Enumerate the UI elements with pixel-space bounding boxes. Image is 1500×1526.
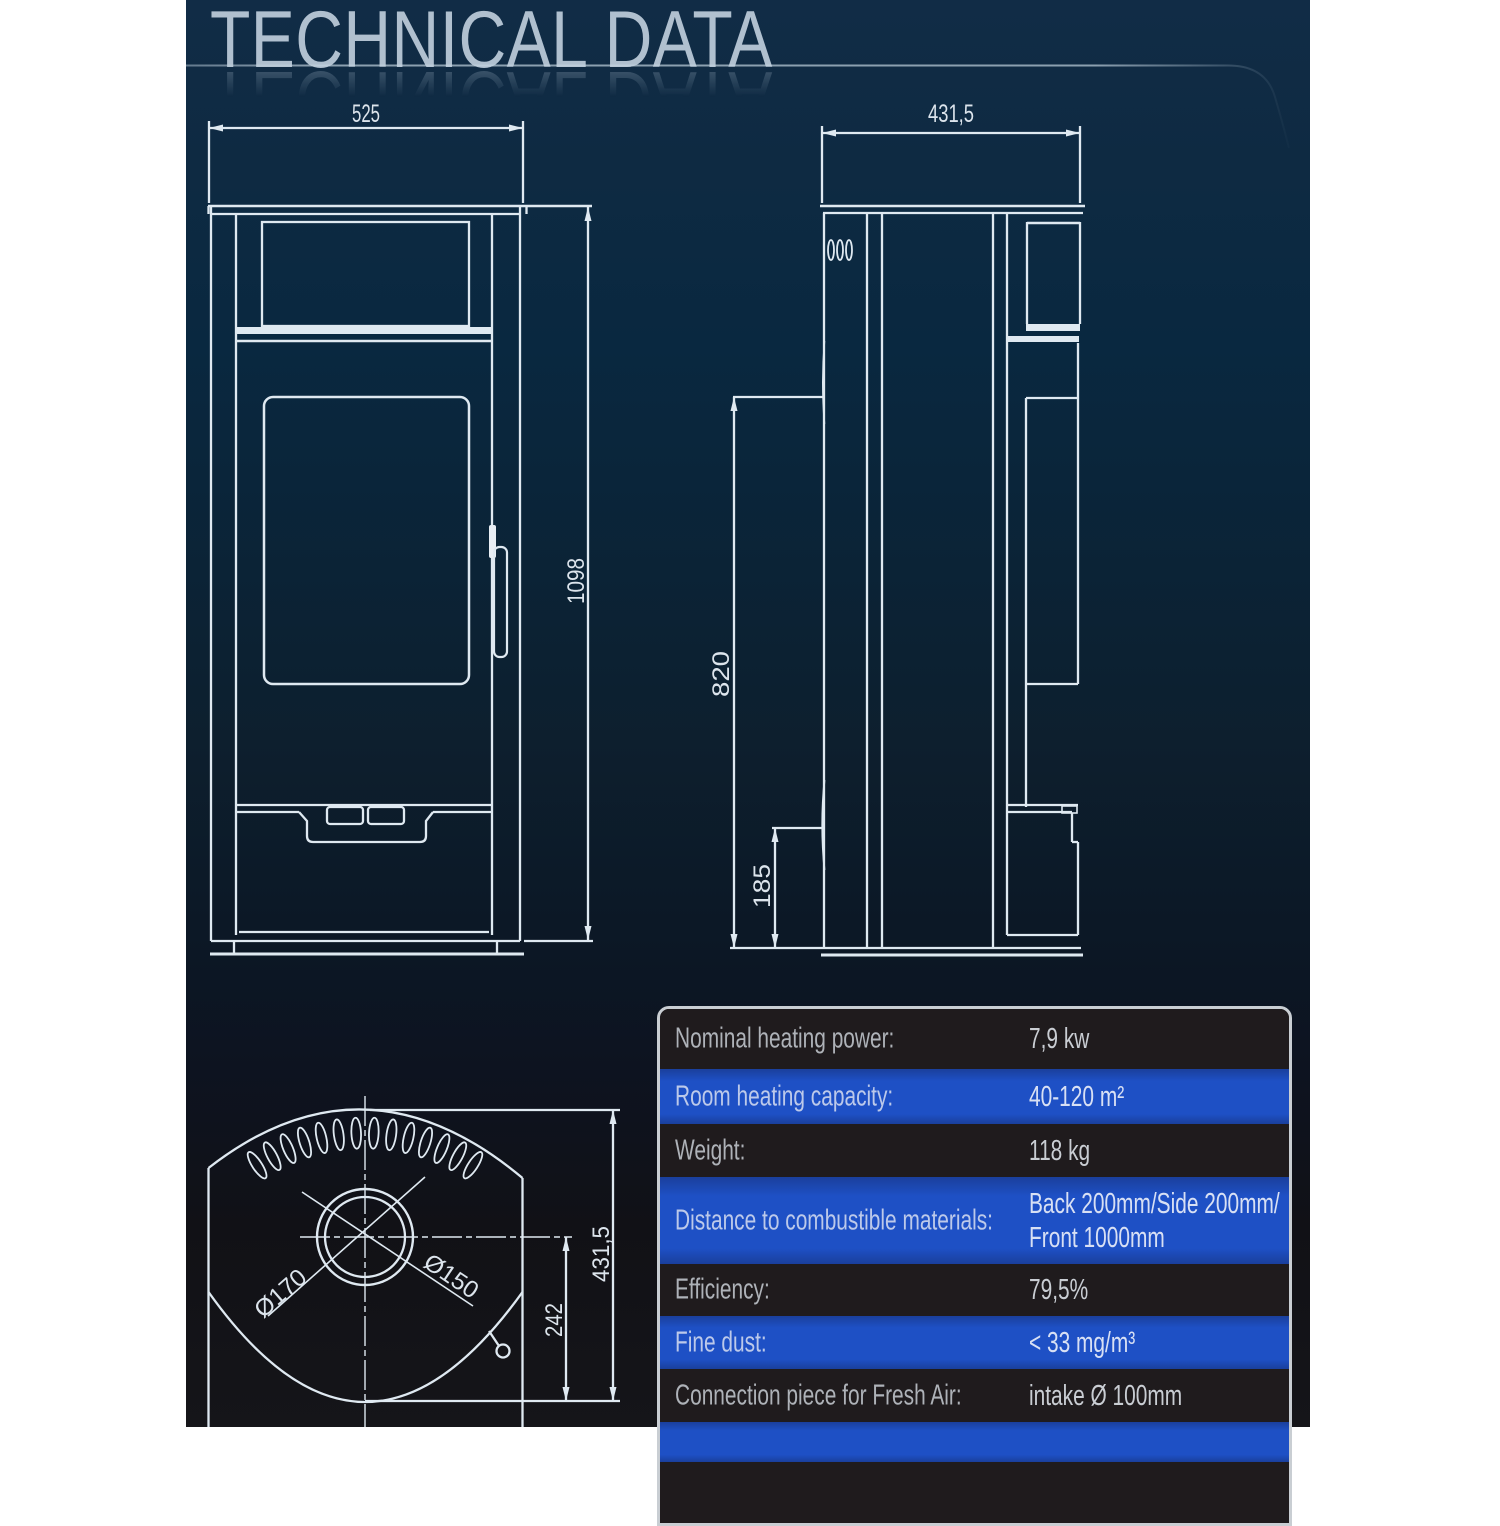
svg-text:431,5: 431,5: [928, 100, 974, 128]
svg-text:820: 820: [708, 651, 735, 697]
svg-text:525: 525: [352, 100, 380, 128]
svg-text:Ø170: Ø170: [249, 1264, 312, 1324]
svg-text:242: 242: [541, 1303, 568, 1337]
svg-text:431,5: 431,5: [588, 1226, 615, 1282]
svg-text:1098: 1098: [563, 558, 590, 604]
svg-text:Ø150: Ø150: [419, 1249, 484, 1305]
svg-text:185: 185: [749, 864, 776, 908]
